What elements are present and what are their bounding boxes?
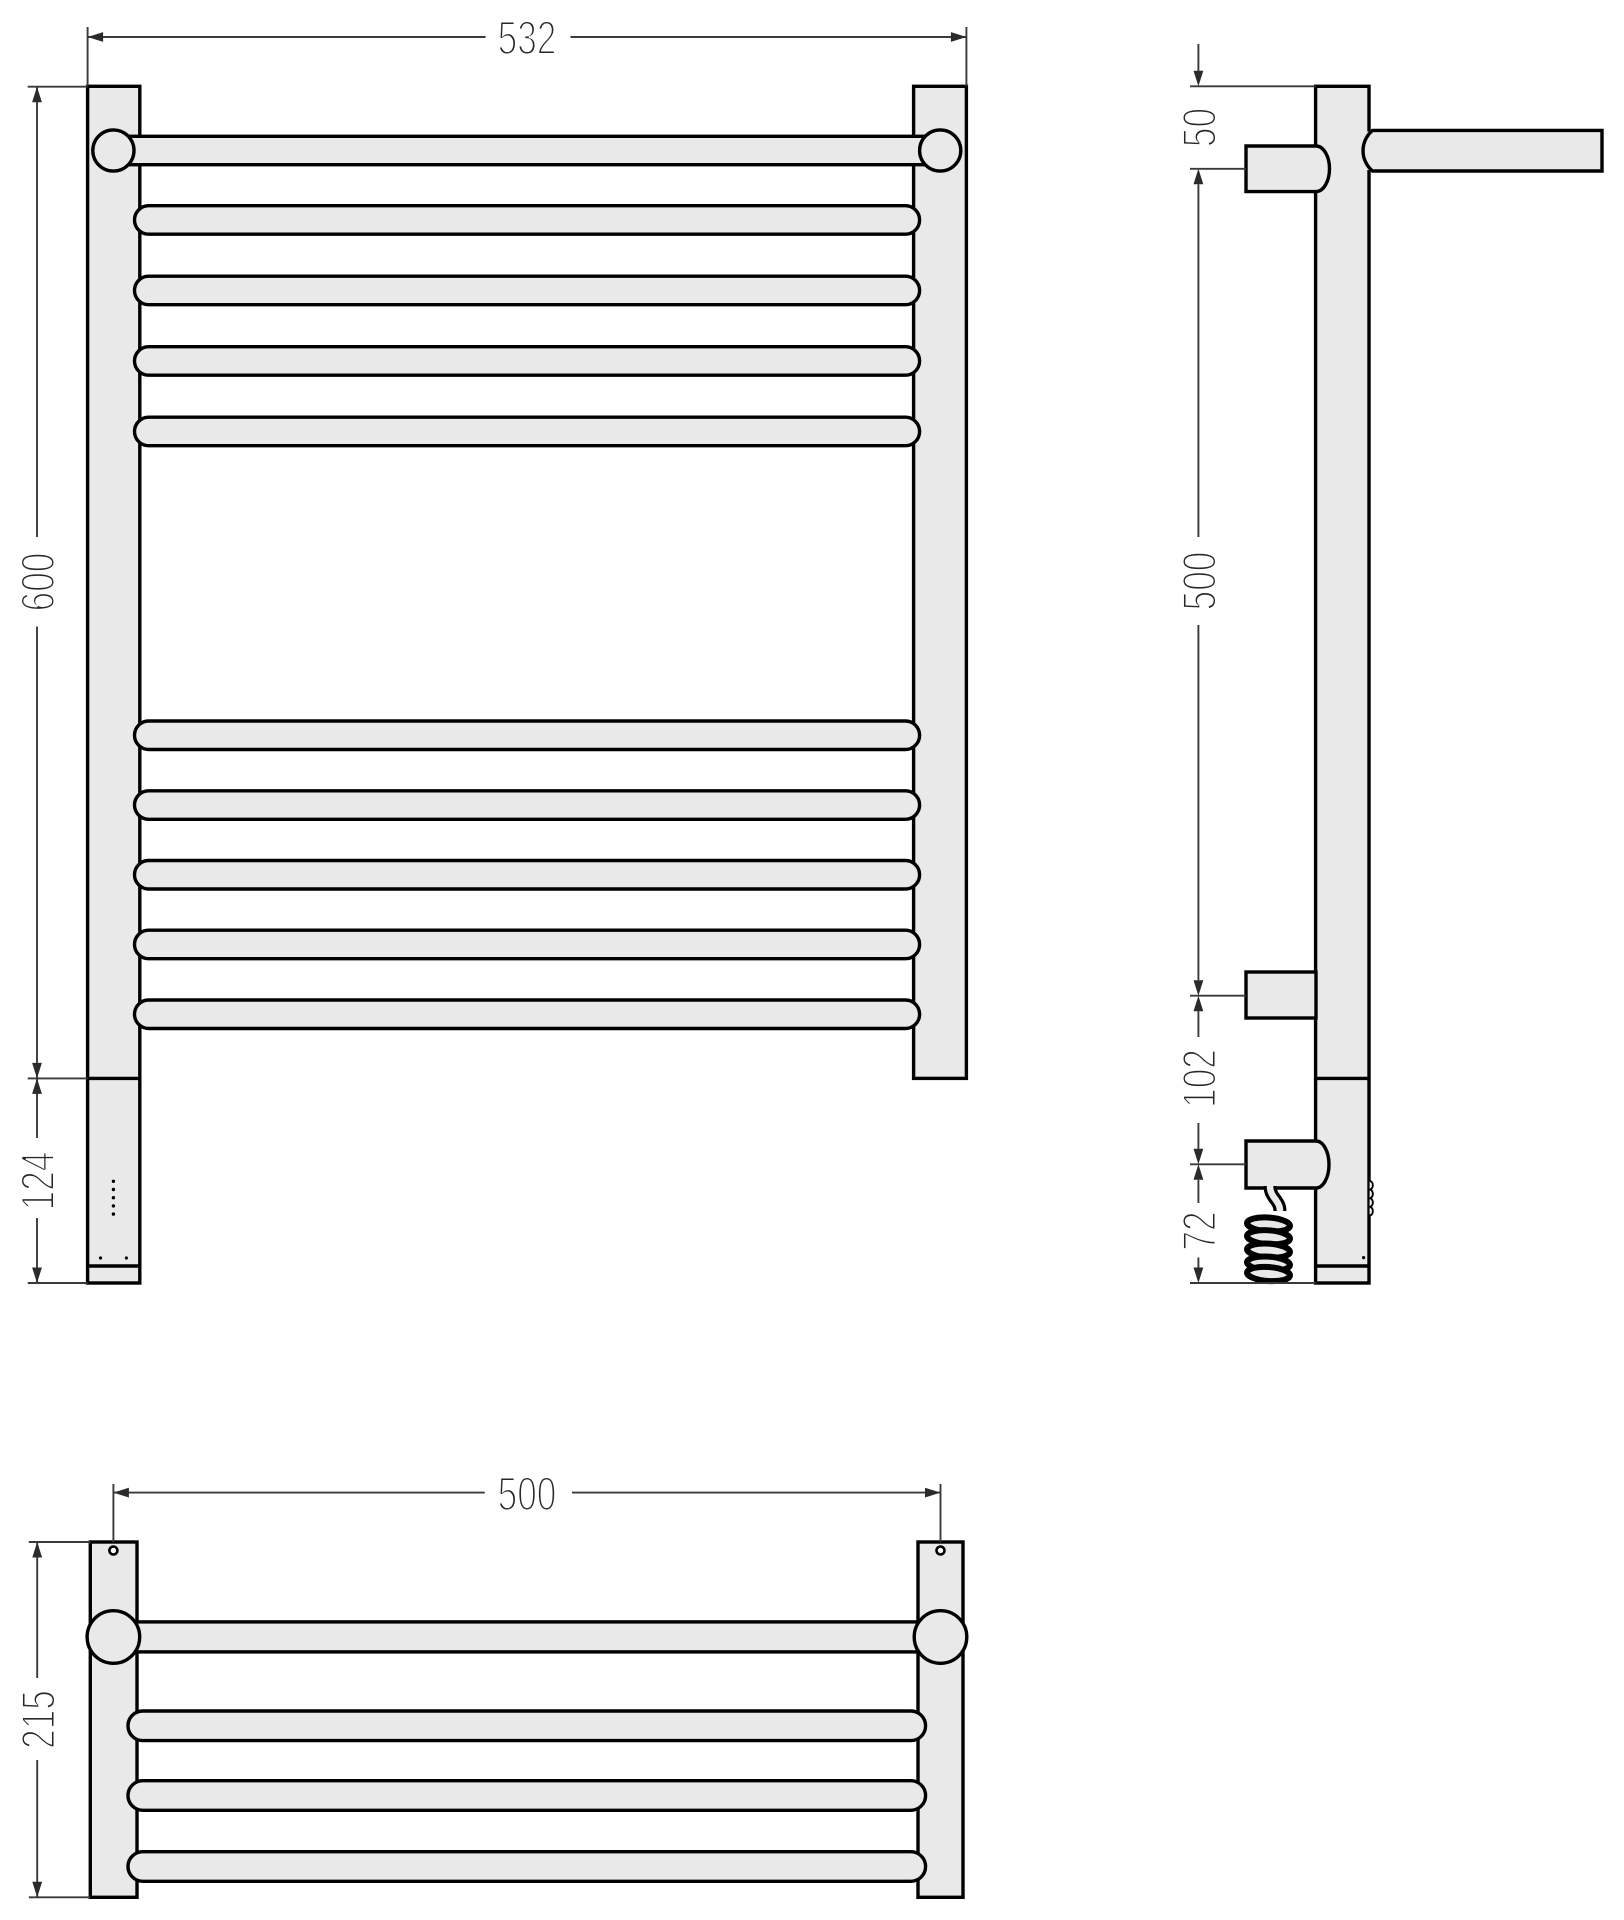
svg-text:215: 215 bbox=[11, 1690, 64, 1749]
svg-text:102: 102 bbox=[1173, 1049, 1226, 1108]
svg-text:500: 500 bbox=[498, 1467, 557, 1520]
svg-text:600: 600 bbox=[11, 553, 64, 612]
svg-text:500: 500 bbox=[1173, 552, 1226, 611]
svg-text:532: 532 bbox=[498, 11, 557, 64]
svg-text:50: 50 bbox=[1173, 108, 1226, 147]
svg-text:124: 124 bbox=[11, 1152, 64, 1211]
svg-text:72: 72 bbox=[1173, 1211, 1226, 1250]
